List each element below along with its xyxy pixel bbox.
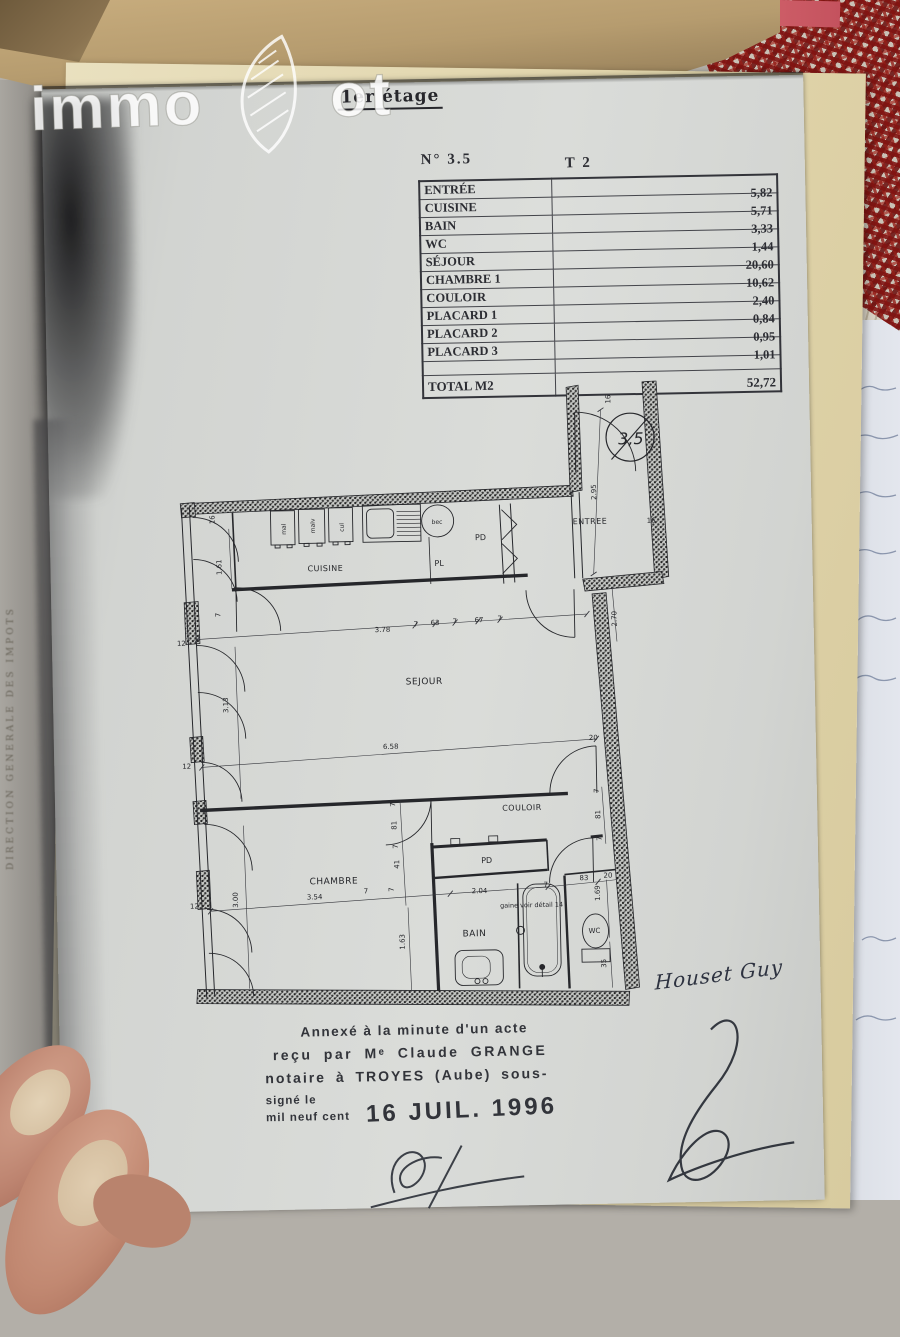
room-area-table: ENTRÉE5,82 CUISINE5,71 BAIN3,33 WC1,44 S… xyxy=(418,173,782,399)
dim-label: 16 xyxy=(604,394,612,404)
bottom-signature xyxy=(362,1138,543,1211)
fixture-label-cul: cul xyxy=(339,523,346,532)
dim-label: 3.54 xyxy=(307,893,323,901)
dim-label: 41 xyxy=(393,860,401,869)
plan-note: gaine voir détail 14 xyxy=(500,901,563,910)
dim-label: 2.95 xyxy=(590,484,598,500)
room-label-pd-kitchen: PD xyxy=(475,533,486,542)
dim-label: 7 xyxy=(414,620,419,628)
dim-label: 7 xyxy=(593,788,601,793)
room-label-cuisine: CUISINE xyxy=(307,564,343,574)
room-area: 20,60 xyxy=(553,247,779,269)
annotation-line4b: mil neuf cent xyxy=(266,1109,350,1128)
dim-label: 3.00 xyxy=(232,892,240,908)
dim-label: 81 xyxy=(390,821,398,830)
dim-label: 3.78 xyxy=(375,626,391,634)
fixture-label-mal: mal xyxy=(281,523,288,535)
dim-label: 7 xyxy=(214,613,222,618)
room-label-bain: BAIN xyxy=(462,929,486,939)
kitchen-and-bath-fixtures xyxy=(270,501,610,989)
dim-label: 7 xyxy=(596,836,604,841)
immo-lot-watermark: immo ot xyxy=(20,21,455,186)
fixture-label-bec: bec xyxy=(432,519,443,526)
book-spine-text: DIRECTION GENERALE DES IMPOTS xyxy=(6,520,32,870)
dim-label: 16 xyxy=(208,515,216,525)
dim-label: 35 xyxy=(600,959,608,968)
dim-label: 7 xyxy=(544,881,549,889)
dim-label: 1.69 xyxy=(594,885,602,901)
notary-annotation: Annexé à la minute d'un acte reçu par Mᵉ… xyxy=(264,1018,626,1127)
dim-label: 7 xyxy=(364,887,369,895)
dim-label: 1.63 xyxy=(399,934,407,950)
dim-label: 12 xyxy=(182,763,191,771)
dim-label: 63 xyxy=(431,619,440,627)
dim-label: 81 xyxy=(594,810,602,819)
dim-label: 83 xyxy=(579,874,588,882)
room-label-couloir: COULOIR xyxy=(502,803,542,813)
apartment-type-label: T 2 xyxy=(565,155,592,173)
interior-walls xyxy=(181,492,617,998)
dim-label: 12 xyxy=(177,640,186,648)
fixture-label-malv: malv xyxy=(310,518,317,533)
signature-flourish xyxy=(651,1007,815,1225)
room-label-pd-couloir: PD xyxy=(481,856,492,865)
dim-label: 1.61 xyxy=(215,559,223,575)
unit-number: 3,5 xyxy=(618,429,644,448)
dim-label: 2.70 xyxy=(610,611,618,627)
exterior-walls xyxy=(178,380,677,1013)
room-label-sejour: SEJOUR xyxy=(406,677,443,688)
dim-label: 7 xyxy=(389,802,397,807)
annotation-line3: notaire à TROYES (Aube) sous- xyxy=(265,1063,625,1086)
room-label-entree: ENTREE xyxy=(573,517,608,527)
room-label-chambre: CHAMBRE xyxy=(309,876,358,887)
annotation-line4a: signé le xyxy=(266,1092,350,1111)
dim-label: 16 xyxy=(647,517,657,525)
dim-label: 7 xyxy=(388,887,396,892)
dim-label: 2.04 xyxy=(472,887,488,895)
annotation-line2: reçu par Mᵉ Claude GRANGE xyxy=(273,1040,625,1063)
photo-of-floor-plan-document: { "photo": { "watermark": {"part1": "imm… xyxy=(0,0,900,1200)
room-label-pl: PL xyxy=(434,559,444,568)
watermark-text-ot: ot xyxy=(329,60,394,131)
dim-label: 7 xyxy=(392,844,400,849)
watermark-text-immo: immo xyxy=(29,69,205,144)
floor-plan: 3,5 ENTREE CUISINE PL PD SEJOUR COULOIR … xyxy=(142,380,724,1026)
dim-label: 3.13 xyxy=(222,697,230,713)
dim-label: 67 xyxy=(474,616,483,624)
dim-label: 20 xyxy=(589,734,598,742)
photocopy-page: 1er étage N° 3.5 T 2 ENTRÉE5,82 CUISINE5… xyxy=(41,75,824,1214)
room-label-wc: WC xyxy=(588,927,600,935)
dim-label: 20 xyxy=(603,872,612,880)
dim-label: 6.58 xyxy=(383,743,399,751)
date-stamp: 16 JUIL. 1996 xyxy=(365,1092,557,1129)
dim-label: 7 xyxy=(452,618,457,626)
dim-label: 7 xyxy=(497,615,502,623)
leaf-icon xyxy=(240,36,298,153)
dim-label: 12 xyxy=(190,903,199,911)
